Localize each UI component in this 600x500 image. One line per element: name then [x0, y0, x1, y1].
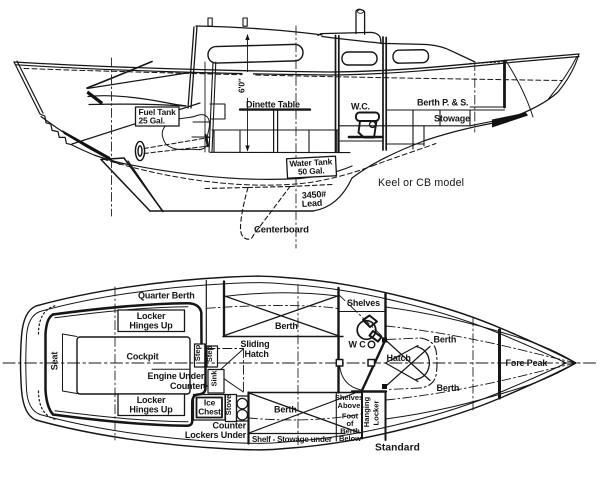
svg-text:Sink: Sink: [209, 370, 218, 387]
svg-text:Berth P. & S.: Berth P. & S.: [417, 98, 468, 108]
svg-text:Lockers Under: Lockers Under: [185, 430, 247, 440]
svg-text:W C: W C: [349, 340, 367, 350]
svg-text:Keel or CB model: Keel or CB model: [378, 177, 464, 189]
svg-text:Shelves: Shelves: [347, 298, 380, 308]
svg-text:Above: Above: [338, 401, 361, 410]
svg-text:50 Gal.: 50 Gal.: [298, 165, 325, 176]
svg-text:Berth: Berth: [434, 335, 457, 345]
svg-text:Hinges Up: Hinges Up: [129, 321, 173, 331]
svg-text:Fore Peak: Fore Peak: [506, 358, 549, 368]
svg-text:Stove: Stove: [224, 395, 233, 416]
svg-text:Step: Step: [193, 344, 202, 361]
svg-text:Berth: Berth: [275, 321, 298, 331]
svg-text:Sliding: Sliding: [241, 339, 270, 349]
svg-text:Step: Step: [205, 345, 214, 362]
svg-text:W.C.: W.C.: [351, 102, 370, 112]
svg-text:Lead: Lead: [301, 198, 322, 209]
svg-text:Locker: Locker: [137, 311, 166, 321]
svg-text:Cockpit: Cockpit: [127, 352, 159, 362]
svg-text:6'0'': 6'0'': [237, 78, 247, 93]
svg-text:Hinges Up: Hinges Up: [129, 405, 173, 415]
svg-text:Dinette Table: Dinette Table: [246, 100, 300, 110]
svg-text:Engine Under: Engine Under: [148, 371, 205, 381]
svg-text:Chest: Chest: [198, 407, 221, 417]
svg-text:Locker: Locker: [137, 395, 166, 405]
svg-text:Berth: Berth: [274, 405, 297, 415]
svg-text:Seat: Seat: [50, 352, 60, 371]
svg-text:Hatch: Hatch: [387, 353, 411, 363]
svg-text:Quarter Berth: Quarter Berth: [138, 291, 195, 301]
svg-text:Hanging: Hanging: [362, 396, 371, 427]
svg-text:Shelf - Stowage under: Shelf - Stowage under: [252, 435, 332, 444]
svg-text:Standard: Standard: [375, 443, 420, 454]
svg-text:Centerboard: Centerboard: [254, 225, 309, 236]
svg-text:Locker: Locker: [372, 401, 381, 426]
svg-text:Hatch: Hatch: [245, 349, 269, 359]
svg-text:Below: Below: [339, 434, 361, 443]
svg-text:Counter: Counter: [170, 381, 204, 391]
svg-text:Stowage: Stowage: [434, 114, 470, 124]
svg-text:25 Gal.: 25 Gal.: [139, 116, 165, 126]
